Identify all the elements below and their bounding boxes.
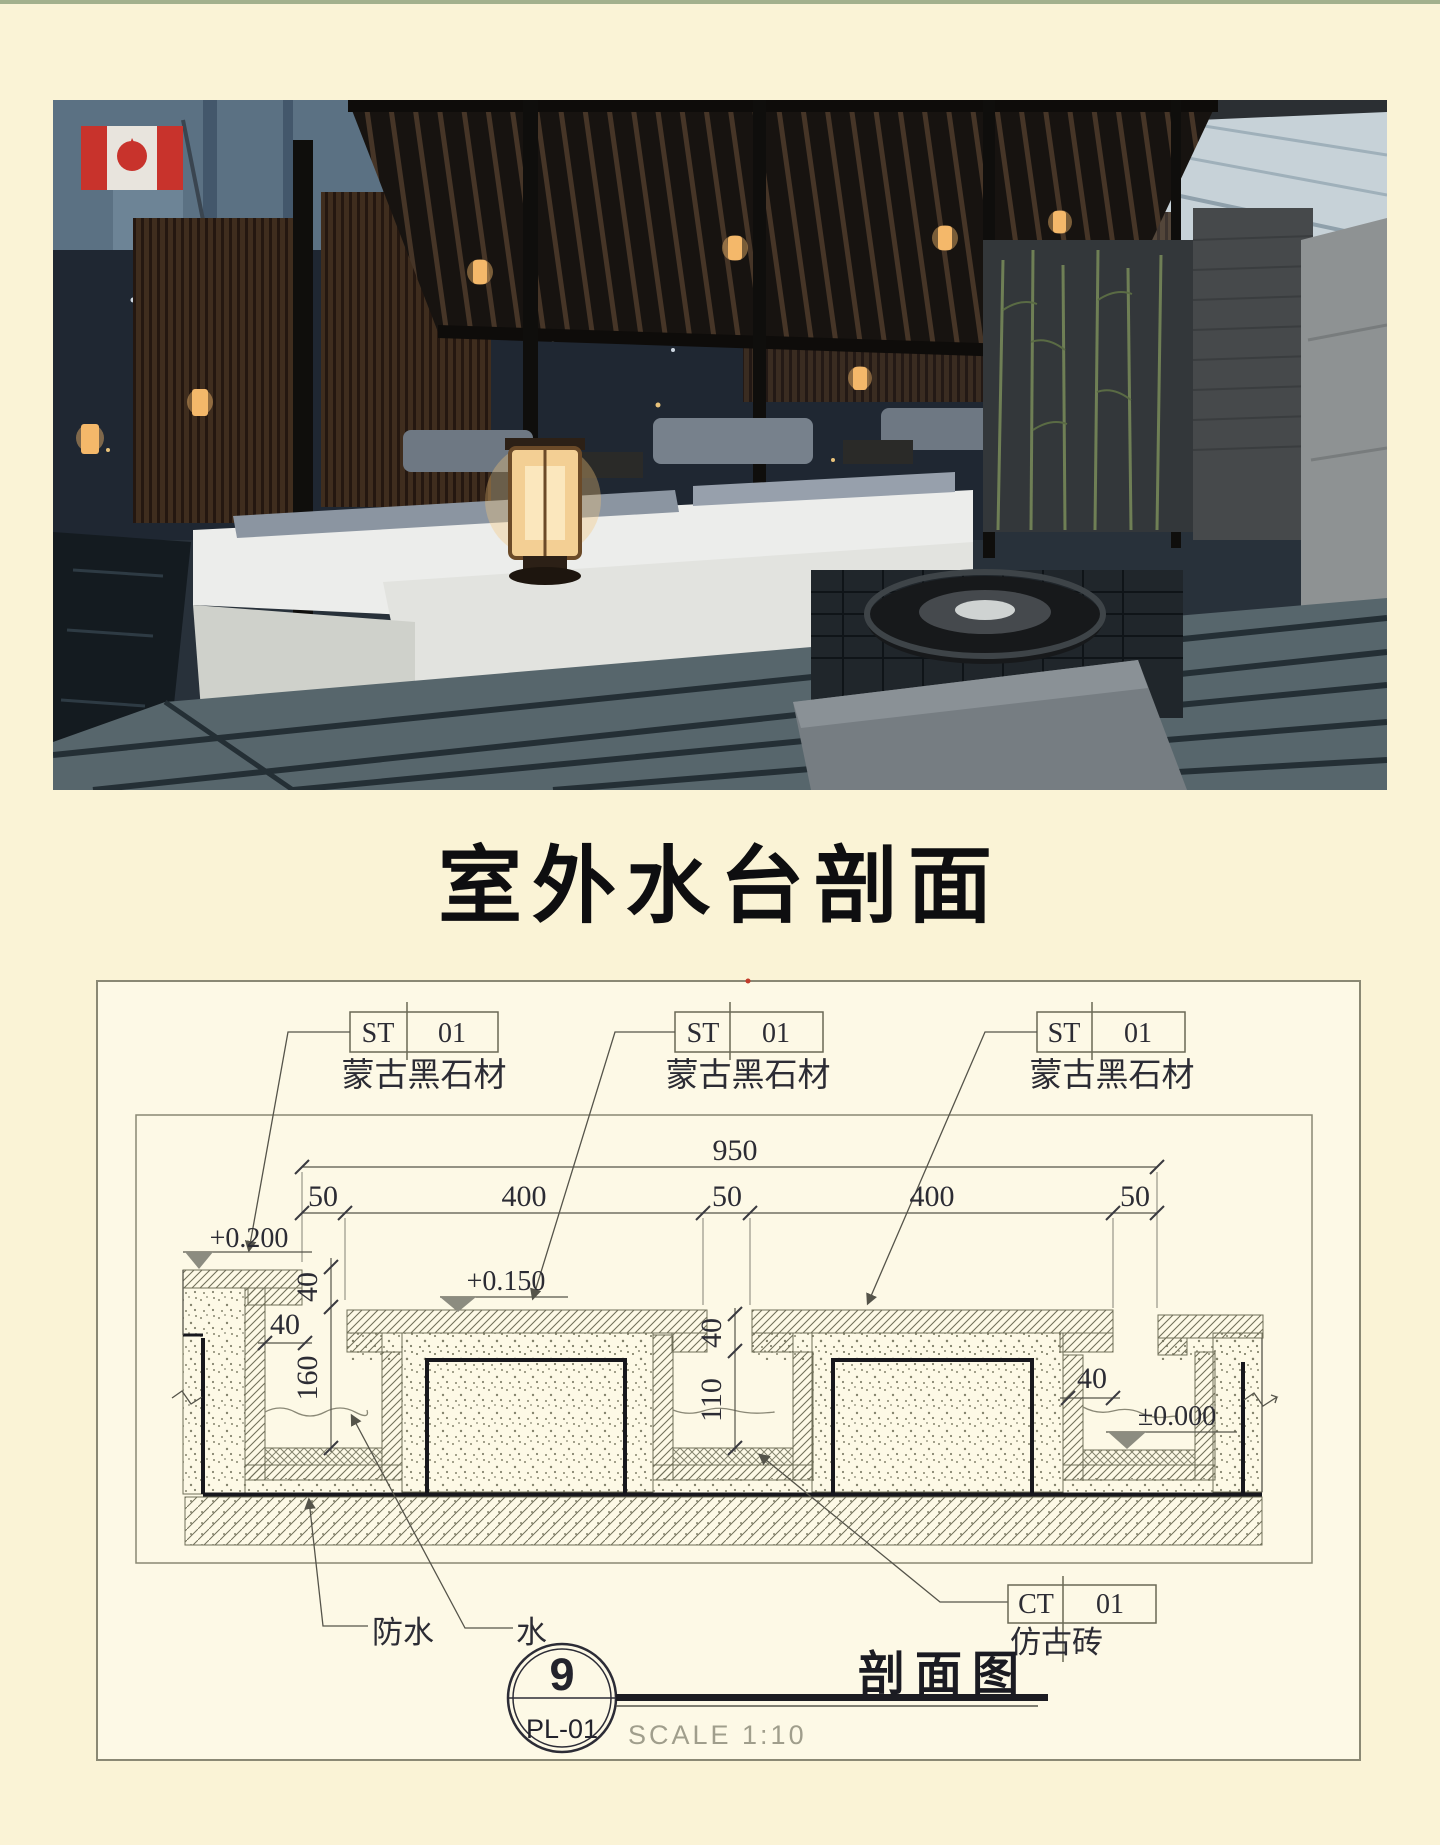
callout-scale: SCALE 1:10	[628, 1720, 807, 1750]
page: 室外水台剖面	[0, 0, 1440, 1845]
dim-seg2: 400	[502, 1180, 547, 1213]
top-accent-strip	[0, 0, 1440, 4]
tag2-num: 01	[762, 1018, 790, 1049]
tag1-code: ST	[362, 1018, 395, 1049]
bowl-fountain	[793, 570, 1187, 790]
tag3-code: ST	[1048, 1018, 1081, 1049]
tag2-code: ST	[687, 1018, 720, 1049]
dim-channel1-160: 160	[291, 1356, 324, 1401]
callout-sheet: PL-01	[526, 1714, 598, 1744]
terrace-photo	[53, 100, 1387, 790]
callout-name: 剖面图	[858, 1647, 1029, 1700]
level-left-label: +0.200	[210, 1223, 289, 1254]
dim-seg5: 50	[1120, 1180, 1150, 1213]
level-middle-label: +0.150	[467, 1266, 546, 1297]
dim-total: 950	[713, 1134, 758, 1167]
dim-slab-40: 40	[695, 1318, 728, 1348]
dim-coping-40: 40	[291, 1272, 324, 1302]
base-slab	[185, 1497, 1262, 1545]
dim-seg1: 50	[308, 1180, 338, 1213]
callout-number: 9	[549, 1649, 574, 1700]
tile-tag-num: 01	[1096, 1589, 1124, 1620]
label-water: 水	[516, 1615, 547, 1650]
dim-seg4: 400	[910, 1180, 955, 1213]
tag2-material: 蒙古黑石材	[666, 1056, 831, 1093]
label-waterproof: 防水	[372, 1615, 434, 1650]
level-right-label: ±0.000	[1138, 1401, 1216, 1432]
tag1-num: 01	[438, 1018, 466, 1049]
tag3-num: 01	[1124, 1018, 1152, 1049]
section-drawing: ST 01 蒙古黑石材 ST 01 蒙古黑石材 ST 01 蒙古黑石材	[60, 960, 1380, 1790]
page-title: 室外水台剖面	[0, 840, 1440, 932]
drawing-panel-border	[97, 981, 1360, 1760]
dim-wall-40: 40	[270, 1308, 300, 1341]
dim-seg3: 50	[712, 1180, 742, 1213]
dim-channel3-40: 40	[1077, 1362, 1107, 1395]
dim-channel2-110: 110	[695, 1378, 728, 1422]
tile-tag-code: CT	[1018, 1589, 1054, 1620]
tag1-material: 蒙古黑石材	[342, 1056, 507, 1093]
tag3-material: 蒙古黑石材	[1030, 1056, 1195, 1093]
red-dot-artifact	[746, 979, 751, 984]
